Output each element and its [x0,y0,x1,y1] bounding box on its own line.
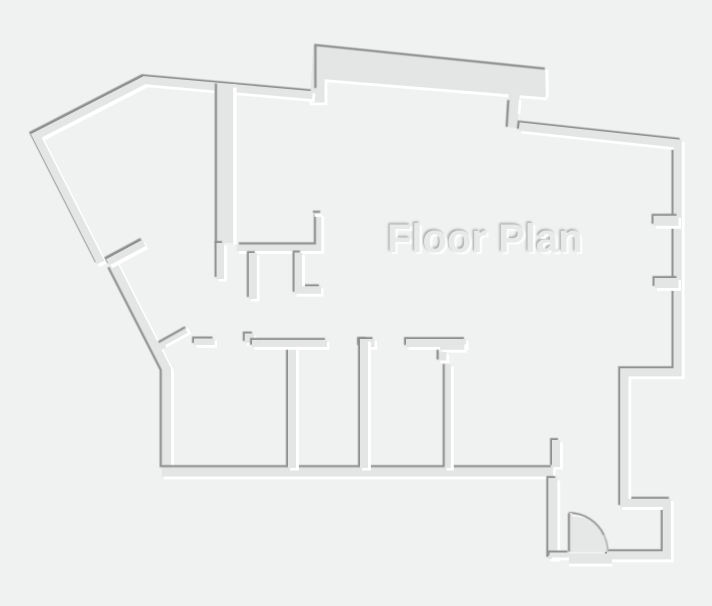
svg-text:Floor Plan: Floor Plan [387,217,583,261]
